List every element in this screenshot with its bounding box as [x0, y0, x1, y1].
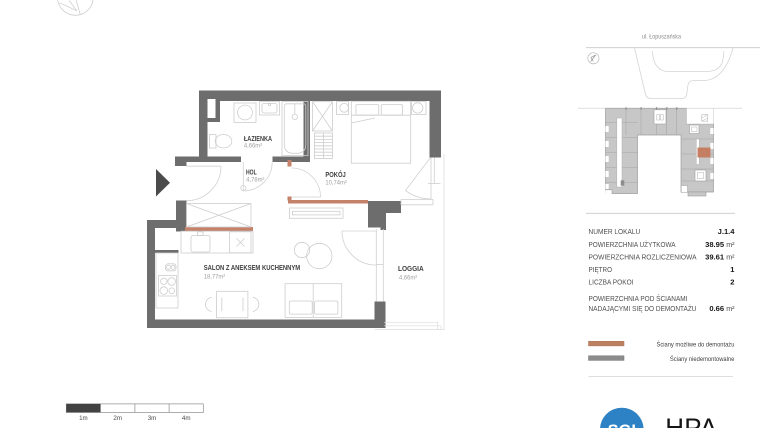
svg-text:SGI: SGI [608, 422, 636, 428]
svg-text:0.66 m²: 0.66 m² [709, 304, 735, 313]
svg-text:4,66m²: 4,66m² [399, 274, 418, 281]
svg-text:HPA: HPA [665, 412, 718, 428]
svg-text:3m: 3m [148, 415, 157, 422]
svg-text:Ściany niedemontowalne: Ściany niedemontowalne [670, 354, 735, 363]
svg-text:SALON Z ANEKSEM KUCHENNYM: SALON Z ANEKSEM KUCHENNYM [204, 263, 301, 272]
svg-text:POKÓJ: POKÓJ [325, 170, 345, 179]
svg-text:38.95 m²: 38.95 m² [705, 240, 735, 249]
svg-text:POWIERZCHNIA POD ŚCIANAMI: POWIERZCHNIA POD ŚCIANAMI [589, 294, 688, 303]
svg-text:LOGGIA: LOGGIA [398, 264, 424, 273]
svg-text:NUMER LOKALU: NUMER LOKALU [589, 227, 641, 236]
svg-text:POWIERZCHNIA UŻYTKOWA: POWIERZCHNIA UŻYTKOWA [589, 240, 677, 249]
svg-text:4m: 4m [182, 415, 191, 422]
svg-text:1m: 1m [79, 415, 88, 422]
svg-text:Ściany możliwe do demontażu: Ściany możliwe do demontażu [657, 339, 735, 348]
svg-text:2: 2 [730, 278, 734, 287]
svg-text:POWIERZCHNIA ROZLICZENIOWA: POWIERZCHNIA ROZLICZENIOWA [589, 252, 698, 261]
svg-text:4,78m²: 4,78m² [246, 176, 265, 183]
svg-text:10,74m²: 10,74m² [325, 179, 347, 186]
svg-text:PIĘTRO: PIĘTRO [589, 265, 613, 274]
svg-text:18,77m²: 18,77m² [204, 273, 226, 280]
svg-text:LICZBA POKOI: LICZBA POKOI [589, 278, 634, 287]
svg-text:ŁAZIENKA: ŁAZIENKA [244, 134, 273, 143]
svg-text:4,66m²: 4,66m² [244, 143, 263, 150]
svg-text:NADAJĄCYMI SIĘ DO DEMONTAŻU: NADAJĄCYMI SIĘ DO DEMONTAŻU [589, 304, 697, 313]
svg-text:J.1.4: J.1.4 [718, 227, 736, 236]
svg-text:39.61 m²: 39.61 m² [705, 252, 735, 261]
svg-text:ul. Łopuszańska: ul. Łopuszańska [642, 34, 682, 40]
svg-text:2m: 2m [113, 415, 122, 422]
